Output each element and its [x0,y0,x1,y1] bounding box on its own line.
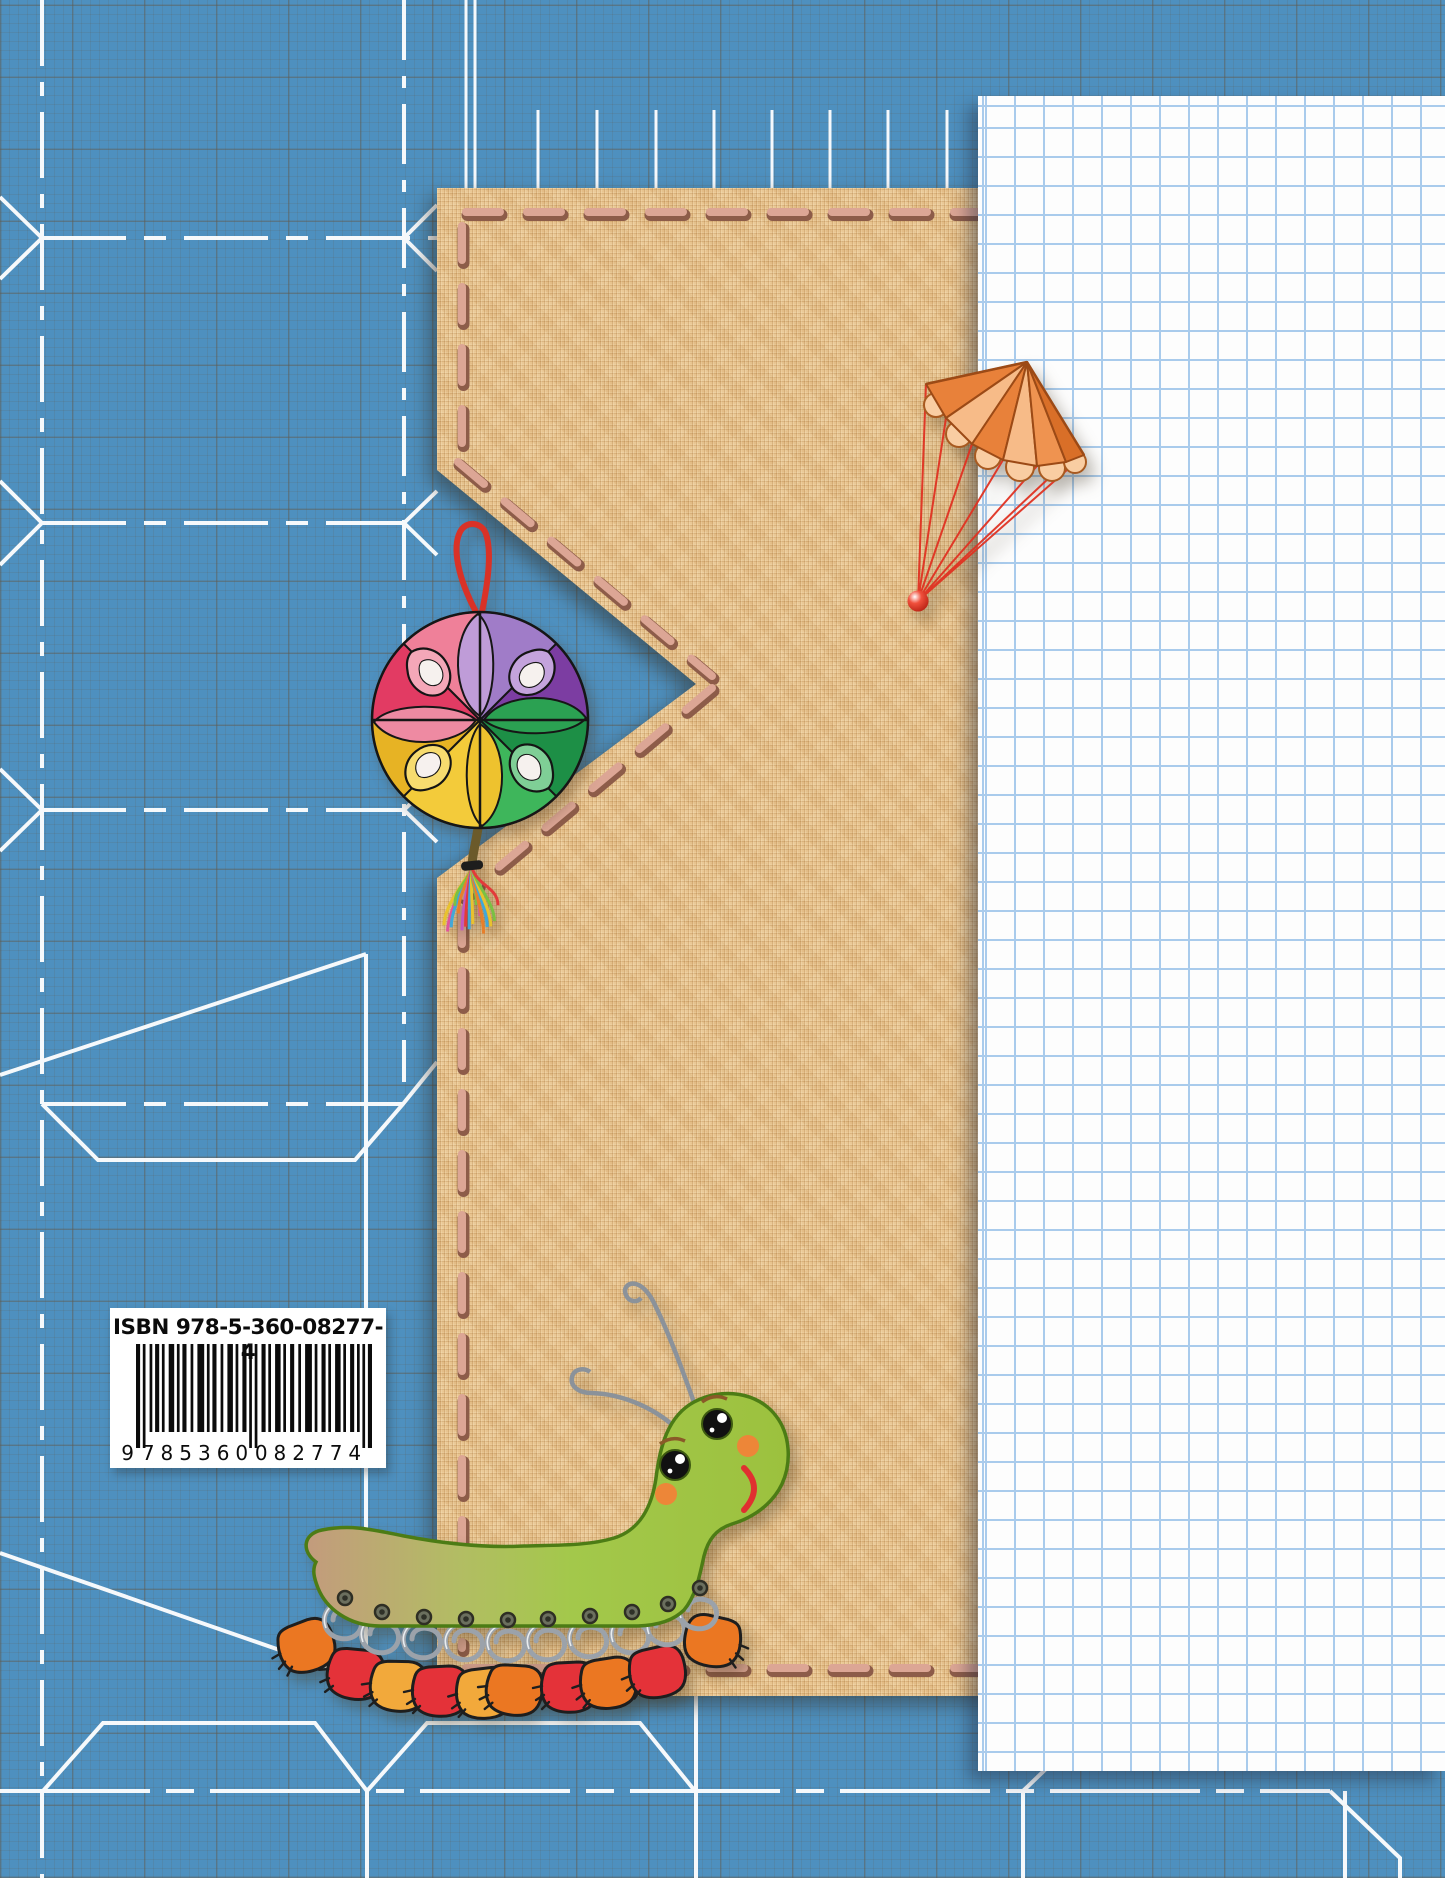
book-back-cover: ISBN 978-5-360-08277-4 9 785360 082774 [0,0,1445,1878]
parachute-bead [908,591,929,612]
parachute-canopy [924,362,1086,481]
parachute-illustration [908,362,1087,612]
